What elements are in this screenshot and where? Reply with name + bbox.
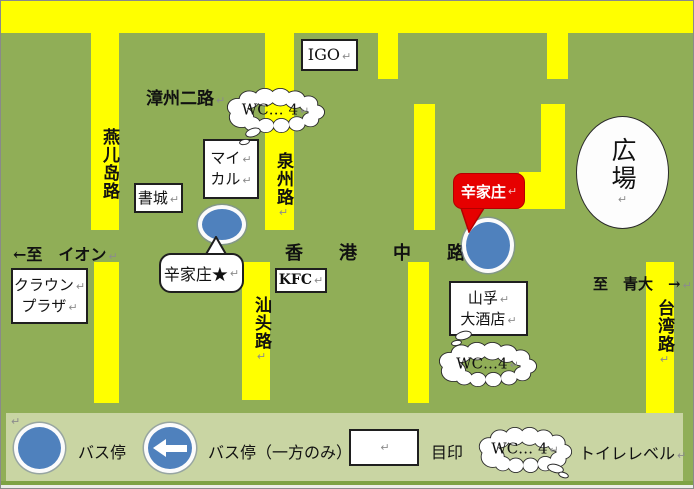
return-mark: ↵ (255, 350, 268, 364)
legend-toilet-level-label: トイレレベル↵ (579, 440, 686, 464)
left-arrow-icon (148, 427, 192, 469)
kfc-box: KFC↵ (275, 268, 327, 293)
return-mark: ↵ (683, 279, 692, 292)
road-east-upper (547, 1, 568, 79)
shanfu-hotel-label-line2: 大酒店↵ (460, 309, 516, 330)
kfc-label: KFC↵ (279, 271, 323, 291)
return-mark: ↵ (510, 358, 519, 371)
bookstore-box: 書城↵ (134, 183, 183, 213)
road-mid-lower (408, 262, 429, 403)
mycal-box: マイ↵ カル↵ (203, 139, 259, 199)
return-mark: ↵ (242, 174, 251, 187)
wc-note-north-label: WC… 4↵ (225, 100, 326, 118)
mycal-label-line2: カル↵ (210, 169, 251, 190)
return-mark: ↵ (658, 353, 671, 367)
wc-cloud-hotel: WC…4↵ (437, 342, 538, 387)
crown-plaza-label-line1: クラウン↵ (14, 275, 85, 296)
return-mark: ↵ (300, 104, 309, 117)
legend-landmark-label: 目印 (431, 439, 463, 463)
return-mark: ↵ (380, 440, 389, 455)
return-mark: ↵ (550, 444, 559, 457)
shanfu-hotel-box: 山孚↵ 大酒店↵ (449, 281, 528, 336)
return-mark: ↵ (230, 267, 239, 280)
igo-box: IGO↵ (301, 39, 358, 71)
legend-bus-stop-oneway-symbol (144, 423, 196, 473)
igo-label: IGO↵ (308, 44, 351, 66)
plaza-ellipse: 広場↵ (576, 116, 669, 229)
return-mark: ↵ (507, 314, 516, 327)
bookstore-label: 書城↵ (138, 188, 179, 209)
legend-bus-stop-label: バス停 (78, 439, 126, 463)
return-mark: ↵ (500, 293, 509, 306)
shanfu-hotel-label-line1: 山孚↵ (468, 288, 509, 309)
direction-to-aeon: ←至 イオン↵ (13, 241, 118, 265)
direction-to-qingda: 至 青大 →↵ (593, 273, 692, 294)
return-mark: ↵ (277, 206, 290, 220)
crown-plaza-label-line2: プラザ↵ (21, 296, 77, 317)
return-mark: ↵ (242, 153, 251, 166)
return-mark: ↵ (342, 50, 351, 63)
road-yanerdao-lower (94, 262, 119, 403)
return-mark: ↵ (170, 193, 179, 206)
legend-landmark-box: ↵ (349, 429, 419, 466)
street-label-taiwan: 台湾路↵ (649, 299, 672, 367)
return-mark: ↵ (108, 250, 117, 263)
legend-wc-note-label: WC… 4↵ (477, 440, 573, 458)
return-mark: ↵ (508, 185, 517, 198)
return-mark: ↵ (216, 94, 225, 107)
return-mark: ↵ (314, 274, 323, 287)
street-label-zhangzhou-er: 漳州二路↵ (146, 84, 225, 109)
xinjiazhuang-callout: 辛家庄↵ (453, 173, 525, 209)
street-label-yanerdao: 燕儿岛路 (94, 128, 117, 200)
road-mid-middle (414, 104, 435, 230)
return-mark: ↵ (76, 280, 85, 293)
return-mark: ↵ (677, 449, 686, 462)
road-east-foot (519, 172, 565, 209)
legend-bus-stop-oneway-label: バス停（一方のみ）↵ (208, 439, 363, 463)
xinjiazhuang-stop-callout: 辛家庄★↵ (159, 253, 244, 293)
street-label-shantou: 汕头路↵ (246, 296, 269, 364)
plaza-label: 広場↵ (610, 137, 635, 209)
return-mark: ↵ (616, 193, 629, 209)
mycal-label-line1: マイ↵ (210, 148, 251, 169)
legend-bus-stop-symbol (14, 423, 65, 473)
bottom-page-strip (1, 485, 694, 489)
return-mark: ↵ (11, 415, 20, 428)
street-label-hongkong-middle: 香港中路↵ (285, 239, 484, 265)
return-mark: ↵ (68, 301, 77, 314)
street-label-quanzhou: 泉州路↵ (268, 152, 291, 220)
wc-cloud-north: WC… 4↵ (225, 88, 326, 133)
road-mid-upper (378, 1, 398, 79)
wc-note-hotel-label: WC…4↵ (437, 354, 538, 372)
crown-plaza-box: クラウン↵ プラザ↵ (11, 268, 88, 324)
map-canvas: 広場↵ 漳州二路↵ 燕儿岛路 泉州路↵ 汕头路↵ 台湾路↵ 香港中路↵ ←至 イ… (0, 0, 694, 489)
